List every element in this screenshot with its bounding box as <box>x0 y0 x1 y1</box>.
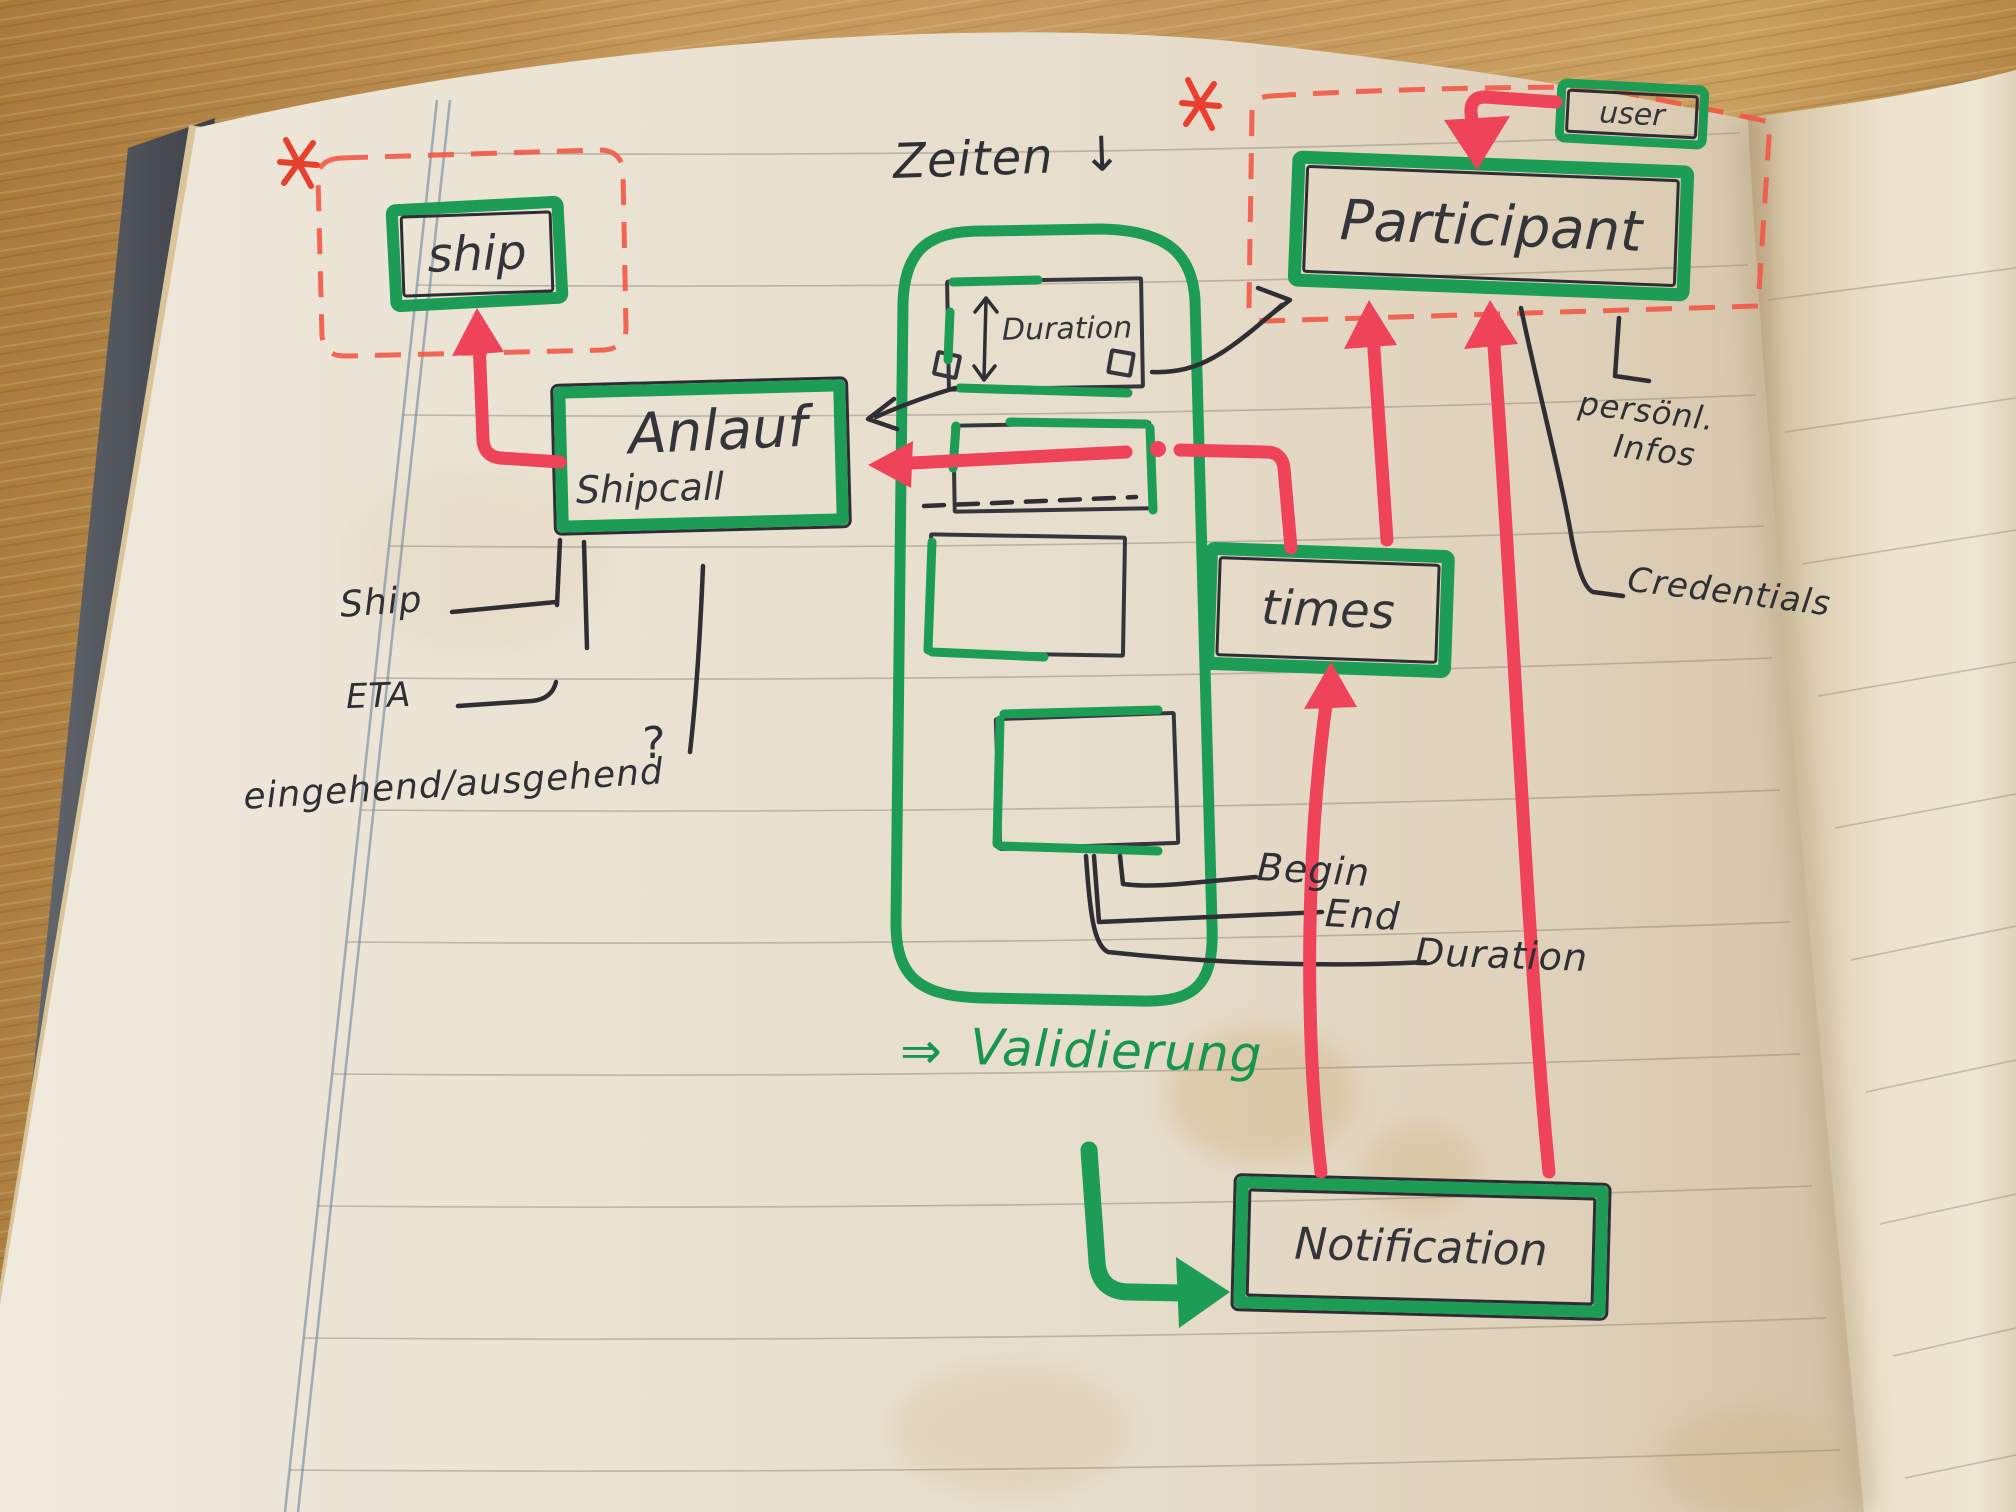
participant-node-label: Participant <box>1339 188 1644 265</box>
duration-anchor-left <box>932 350 963 381</box>
sketch-row-3 <box>994 711 1181 851</box>
user-node-label: user <box>1598 95 1665 133</box>
duration-anchor-right <box>1106 348 1136 378</box>
user-node: user <box>1554 78 1709 150</box>
anlauf-node-sublabel: Shipcall <box>575 464 724 512</box>
duration-node-label: Duration <box>1002 310 1133 347</box>
ship-node: ship <box>385 195 568 312</box>
participant-node: Participant <box>1288 150 1695 301</box>
anlauf-node-label: Anlauf <box>627 395 809 468</box>
sketch-row-2 <box>927 532 1127 657</box>
times-node: times <box>1201 542 1455 679</box>
ship-node-label: ship <box>426 224 527 283</box>
sketch-row-1 <box>951 420 1153 513</box>
anlauf-node: Anlauf Shipcall <box>550 376 852 536</box>
times-node-label: times <box>1260 580 1395 641</box>
notification-node: Notification <box>1230 1173 1611 1321</box>
notebook-photo: ship Anlauf Shipcall Participant user ti… <box>0 0 2016 1512</box>
notification-node-label: Notification <box>1294 1218 1548 1276</box>
